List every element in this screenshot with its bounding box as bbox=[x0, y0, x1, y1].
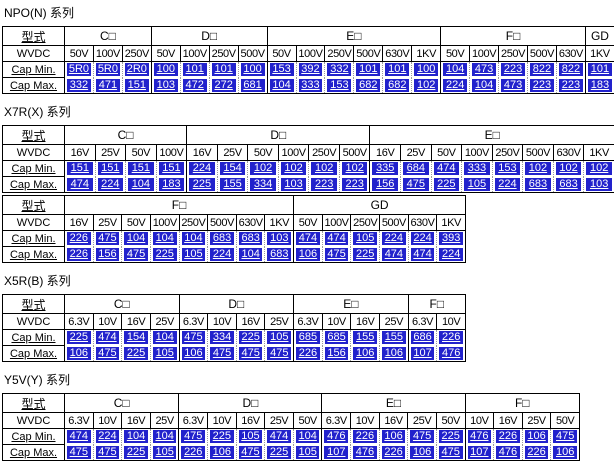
cap-max-cell: 104 bbox=[236, 247, 265, 263]
cap-value-link[interactable]: 683 bbox=[556, 178, 582, 191]
cap-min-cell: 5R0 bbox=[93, 62, 122, 78]
cap-value-link[interactable]: 151 bbox=[159, 162, 185, 175]
cap-min-cell: 333 bbox=[462, 161, 493, 177]
cap-value-link[interactable]: 105 bbox=[239, 430, 263, 443]
cap-min-cell: 106 bbox=[379, 429, 408, 445]
cap-value-link[interactable]: 474 bbox=[411, 248, 435, 261]
cap-max-cell: 153 bbox=[325, 78, 354, 94]
cap-value-link[interactable]: 5R0 bbox=[67, 63, 91, 76]
cap-value-link[interactable]: 104 bbox=[153, 232, 177, 245]
cap-value-link[interactable]: 106 bbox=[182, 347, 206, 360]
cap-min-label[interactable]: Cap Min. bbox=[3, 330, 65, 346]
cap-value-link[interactable]: 154 bbox=[220, 162, 246, 175]
cap-min-cell: 683 bbox=[236, 231, 265, 247]
cap-min-cell: 104 bbox=[122, 231, 151, 247]
cap-max-cell: 475 bbox=[236, 346, 265, 362]
cap-value-link[interactable]: 475 bbox=[124, 248, 148, 261]
cap-max-cell: 225 bbox=[122, 346, 151, 362]
cap-value-link[interactable]: 683 bbox=[239, 232, 263, 245]
cap-min-cell: 684 bbox=[401, 161, 432, 177]
cap-value-link[interactable]: 393 bbox=[439, 232, 463, 245]
cap-max-cell: 682 bbox=[354, 78, 383, 94]
cap-min-cell: 226 bbox=[351, 429, 380, 445]
cap-value-link[interactable]: 225 bbox=[267, 446, 291, 459]
cap-value-link[interactable]: 683 bbox=[525, 178, 551, 191]
cap-value-link[interactable]: 156 bbox=[96, 248, 120, 261]
cap-value-link[interactable]: 106 bbox=[410, 446, 434, 459]
cap-value-link[interactable]: 226 bbox=[525, 446, 549, 459]
cap-value-link[interactable]: 156 bbox=[325, 347, 349, 360]
cap-value-link[interactable]: 223 bbox=[501, 63, 525, 76]
cap-value-link[interactable]: 223 bbox=[559, 79, 583, 92]
cap-value-link[interactable]: 334 bbox=[210, 331, 234, 344]
cap-value-link[interactable]: 102 bbox=[342, 162, 368, 175]
cap-max-cell: 102 bbox=[412, 78, 441, 94]
cap-value-link[interactable]: 226 bbox=[439, 331, 463, 344]
cap-value-link[interactable]: 332 bbox=[327, 63, 351, 76]
cap-value-link[interactable]: 224 bbox=[495, 178, 521, 191]
cap-max-cell: 105 bbox=[462, 177, 493, 193]
cap-value-link[interactable]: 224 bbox=[189, 162, 215, 175]
cap-max-label[interactable]: Cap Max. bbox=[3, 177, 65, 193]
cap-value-link[interactable]: 476 bbox=[496, 446, 520, 459]
cap-value-link[interactable]: 475 bbox=[182, 331, 206, 344]
cap-value-link[interactable]: 100 bbox=[241, 63, 265, 76]
cap-value-link[interactable]: 474 bbox=[67, 430, 91, 443]
cap-value-link[interactable]: 333 bbox=[464, 162, 490, 175]
cap-min-label[interactable]: Cap Min. bbox=[3, 429, 65, 445]
cap-max-cell: 224 bbox=[95, 177, 126, 193]
cap-value-link[interactable]: 476 bbox=[439, 347, 463, 360]
cap-value-link[interactable]: 475 bbox=[181, 430, 205, 443]
voltage-header: 25V bbox=[380, 314, 409, 330]
cap-min-cell: 475 bbox=[179, 429, 208, 445]
cap-value-link[interactable]: 682 bbox=[385, 79, 409, 92]
cap-value-link[interactable]: 474 bbox=[434, 162, 460, 175]
cap-value-link[interactable]: 104 bbox=[296, 430, 320, 443]
cap-value-link[interactable]: 103 bbox=[154, 79, 178, 92]
voltage-header: 630V bbox=[553, 145, 584, 161]
voltage-header: 10V bbox=[322, 314, 351, 330]
cap-value-link[interactable]: 104 bbox=[270, 79, 294, 92]
cap-value-link[interactable]: 681 bbox=[241, 79, 265, 92]
cap-min-cell: 102 bbox=[523, 161, 554, 177]
cap-value-link[interactable]: 224 bbox=[411, 232, 435, 245]
cap-value-link[interactable]: 106 bbox=[67, 347, 91, 360]
cap-value-link[interactable]: 154 bbox=[124, 331, 148, 344]
cap-value-link[interactable]: 475 bbox=[239, 347, 263, 360]
cap-value-link[interactable]: 153 bbox=[327, 79, 351, 92]
cap-value-link[interactable]: 474 bbox=[325, 232, 349, 245]
cap-value-link[interactable]: 226 bbox=[296, 347, 320, 360]
cap-value-link[interactable]: 104 bbox=[443, 63, 467, 76]
cap-value-link[interactable]: 183 bbox=[159, 178, 185, 191]
cap-value-link[interactable]: 103 bbox=[586, 178, 612, 191]
cap-value-link[interactable]: 101 bbox=[385, 63, 409, 76]
cap-max-cell: 475 bbox=[208, 346, 237, 362]
cap-max-label[interactable]: Cap Max. bbox=[3, 78, 65, 94]
cap-min-cell: 224 bbox=[93, 429, 122, 445]
cap-value-link[interactable]: 685 bbox=[296, 331, 320, 344]
cap-max-cell: 155 bbox=[217, 177, 248, 193]
cap-value-link[interactable]: 223 bbox=[342, 178, 368, 191]
cap-value-link[interactable]: 100 bbox=[414, 63, 438, 76]
cap-value-link[interactable]: 682 bbox=[356, 79, 380, 92]
cap-value-link[interactable]: 472 bbox=[183, 79, 207, 92]
cap-value-link[interactable]: 473 bbox=[472, 63, 496, 76]
cap-min-cell: 225 bbox=[436, 429, 465, 445]
cap-value-link[interactable]: 225 bbox=[67, 331, 91, 344]
cap-value-link[interactable]: 224 bbox=[439, 248, 463, 261]
cap-max-cell: 475 bbox=[436, 445, 465, 461]
cap-min-cell: 100 bbox=[238, 62, 267, 78]
cap-value-link[interactable]: 473 bbox=[501, 79, 525, 92]
cap-value-link[interactable]: 476 bbox=[468, 430, 492, 443]
section-title: NPO(N) 系列 bbox=[4, 6, 614, 20]
cap-value-link[interactable]: 224 bbox=[98, 178, 124, 191]
cap-value-link[interactable]: 225 bbox=[353, 248, 377, 261]
cap-value-link[interactable]: 106 bbox=[525, 430, 549, 443]
cap-max-cell: 475 bbox=[65, 445, 94, 461]
cap-max-cell: 105 bbox=[293, 445, 322, 461]
cap-value-link[interactable]: 471 bbox=[96, 79, 120, 92]
cap-value-link[interactable]: 223 bbox=[311, 178, 337, 191]
cap-min-cell: 474 bbox=[294, 231, 323, 247]
cap-value-link[interactable]: 155 bbox=[353, 331, 377, 344]
cap-max-cell: 474 bbox=[65, 177, 96, 193]
type-label[interactable]: 型式 bbox=[3, 126, 65, 145]
cap-value-link[interactable]: 105 bbox=[267, 331, 291, 344]
cap-value-link[interactable]: 822 bbox=[559, 63, 583, 76]
cap-value-link[interactable]: 104 bbox=[128, 178, 154, 191]
type-label[interactable]: 型式 bbox=[3, 27, 65, 46]
cap-value-link[interactable]: 151 bbox=[128, 162, 154, 175]
cap-value-link[interactable]: 224 bbox=[210, 248, 234, 261]
cap-max-cell: 333 bbox=[296, 78, 325, 94]
cap-value-link[interactable]: 475 bbox=[96, 232, 120, 245]
cap-max-cell: 475 bbox=[93, 346, 122, 362]
cap-max-cell: 476 bbox=[437, 346, 466, 362]
cap-min-cell: 104 bbox=[150, 231, 179, 247]
cap-value-link[interactable]: 105 bbox=[153, 347, 177, 360]
cap-value-link[interactable]: 101 bbox=[588, 63, 612, 76]
cap-value-link[interactable]: 224 bbox=[96, 430, 120, 443]
cap-value-link[interactable]: 475 bbox=[239, 446, 263, 459]
cap-value-link[interactable]: 335 bbox=[372, 162, 398, 175]
cap-value-link[interactable]: 226 bbox=[496, 430, 520, 443]
cap-value-link[interactable]: 475 bbox=[96, 446, 120, 459]
cap-min-cell: 473 bbox=[470, 62, 499, 78]
cap-max-cell: 472 bbox=[180, 78, 209, 94]
cap-max-cell: 183 bbox=[585, 78, 614, 94]
cap-value-link[interactable]: 107 bbox=[468, 446, 492, 459]
cap-value-link[interactable]: 475 bbox=[325, 248, 349, 261]
cap-value-link[interactable]: 475 bbox=[210, 347, 234, 360]
cap-min-cell: 101 bbox=[383, 62, 412, 78]
cap-value-link[interactable]: 107 bbox=[324, 446, 348, 459]
cap-min-cell: 151 bbox=[126, 161, 157, 177]
cap-value-link[interactable]: 225 bbox=[210, 430, 234, 443]
cap-value-link[interactable]: 102 bbox=[525, 162, 551, 175]
cap-min-cell: 476 bbox=[322, 429, 351, 445]
cap-value-link[interactable]: 183 bbox=[588, 79, 612, 92]
cap-min-cell: 226 bbox=[437, 330, 466, 346]
cap-value-link[interactable]: 226 bbox=[67, 248, 91, 261]
cap-min-cell: 155 bbox=[380, 330, 409, 346]
cap-max-cell: 103 bbox=[151, 78, 180, 94]
voltage-header: 16V bbox=[187, 145, 218, 161]
cap-min-cell: 102 bbox=[248, 161, 279, 177]
cap-min-cell: 474 bbox=[93, 330, 122, 346]
cap-value-link[interactable]: 685 bbox=[325, 331, 349, 344]
cap-value-link[interactable]: 225 bbox=[153, 248, 177, 261]
section-title: Y5V(Y) 系列 bbox=[4, 373, 614, 387]
voltage-header: 16V bbox=[122, 314, 151, 330]
cap-value-link[interactable]: 684 bbox=[403, 162, 429, 175]
cap-value-link[interactable]: 105 bbox=[353, 232, 377, 245]
cap-value-link[interactable]: 153 bbox=[495, 162, 521, 175]
cap-value-link[interactable]: 476 bbox=[324, 430, 348, 443]
cap-max-label[interactable]: Cap Max. bbox=[3, 445, 65, 461]
cap-value-link[interactable]: 106 bbox=[382, 347, 406, 360]
cap-value-link[interactable]: 475 bbox=[267, 347, 291, 360]
cap-min-label[interactable]: Cap Min. bbox=[3, 62, 65, 78]
cap-min-cell: 475 bbox=[93, 231, 122, 247]
voltage-header: 500V bbox=[238, 46, 267, 62]
voltage-header: 500V bbox=[208, 215, 237, 231]
cap-max-cell: 106 bbox=[408, 445, 437, 461]
cap-value-link[interactable]: 106 bbox=[553, 446, 577, 459]
cap-max-cell: 156 bbox=[322, 346, 351, 362]
cap-value-link[interactable]: 156 bbox=[372, 178, 398, 191]
cap-min-cell: 224 bbox=[408, 231, 437, 247]
cap-value-link[interactable]: 225 bbox=[124, 347, 148, 360]
cap-max-cell: 226 bbox=[294, 346, 323, 362]
cap-value-link[interactable]: 224 bbox=[382, 232, 406, 245]
cap-value-link[interactable]: 107 bbox=[411, 347, 435, 360]
cap-value-link[interactable]: 101 bbox=[356, 63, 380, 76]
group-header: E□ bbox=[370, 126, 614, 145]
cap-value-link[interactable]: 101 bbox=[212, 63, 236, 76]
section-title: X5R(B) 系列 bbox=[4, 274, 614, 288]
type-label[interactable]: 型式 bbox=[3, 394, 65, 413]
cap-max-cell: 226 bbox=[379, 445, 408, 461]
voltage-header: 630V bbox=[408, 215, 437, 231]
cap-max-cell: 683 bbox=[523, 177, 554, 193]
voltage-header: 10V bbox=[93, 314, 122, 330]
cap-value-link[interactable]: 474 bbox=[67, 178, 93, 191]
type-label[interactable]: 型式 bbox=[3, 196, 65, 215]
cap-value-link[interactable]: 104 bbox=[153, 430, 177, 443]
cap-value-link[interactable]: 102 bbox=[414, 79, 438, 92]
cap-max-cell: 183 bbox=[156, 177, 187, 193]
cap-value-link[interactable]: 153 bbox=[270, 63, 294, 76]
cap-value-link[interactable]: 226 bbox=[181, 446, 205, 459]
cap-value-link[interactable]: 155 bbox=[220, 178, 246, 191]
cap-value-link[interactable]: 102 bbox=[311, 162, 337, 175]
cap-value-link[interactable]: 475 bbox=[403, 178, 429, 191]
cap-min-cell: 102 bbox=[339, 161, 370, 177]
cap-max-cell: 106 bbox=[65, 346, 94, 362]
cap-value-link[interactable]: 151 bbox=[67, 162, 93, 175]
cap-min-cell: 686 bbox=[408, 330, 437, 346]
voltage-header: 50V bbox=[248, 145, 279, 161]
voltage-header: 1KV bbox=[412, 46, 441, 62]
cap-value-link[interactable]: 475 bbox=[96, 347, 120, 360]
cap-min-cell: 106 bbox=[522, 429, 551, 445]
cap-min-cell: 101 bbox=[209, 62, 238, 78]
cap-value-link[interactable]: 105 bbox=[153, 446, 177, 459]
cap-value-link[interactable]: 475 bbox=[67, 446, 91, 459]
voltage-header: 50V bbox=[441, 46, 470, 62]
cap-value-link[interactable]: 102 bbox=[556, 162, 582, 175]
voltage-header: 25V bbox=[93, 215, 122, 231]
cap-value-link[interactable]: 102 bbox=[250, 162, 276, 175]
cap-value-link[interactable]: 226 bbox=[67, 232, 91, 245]
cap-value-link[interactable]: 272 bbox=[212, 79, 236, 92]
cap-value-link[interactable]: 105 bbox=[182, 248, 206, 261]
cap-value-link[interactable]: 103 bbox=[281, 178, 307, 191]
cap-value-link[interactable]: 683 bbox=[267, 248, 291, 261]
cap-value-link[interactable]: 103 bbox=[267, 232, 291, 245]
voltage-header: 250V bbox=[351, 215, 380, 231]
cap-min-cell: 822 bbox=[556, 62, 585, 78]
cap-max-label[interactable]: Cap Max. bbox=[3, 247, 65, 263]
cap-value-link[interactable]: 226 bbox=[353, 430, 377, 443]
cap-value-link[interactable]: 686 bbox=[411, 331, 435, 344]
cap-min-cell: 225 bbox=[236, 330, 265, 346]
cap-min-cell: 223 bbox=[499, 62, 528, 78]
voltage-header: 16V bbox=[351, 314, 380, 330]
cap-min-label[interactable]: Cap Min. bbox=[3, 231, 65, 247]
cap-value-link[interactable]: 2R0 bbox=[125, 63, 149, 76]
cap-max-cell: 107 bbox=[322, 445, 351, 461]
voltage-header: 500V bbox=[528, 46, 557, 62]
cap-max-cell: 225 bbox=[122, 445, 151, 461]
cap-min-cell: 822 bbox=[528, 62, 557, 78]
cap-value-link[interactable]: 476 bbox=[353, 446, 377, 459]
cap-value-link[interactable]: 106 bbox=[296, 248, 320, 261]
cap-value-link[interactable]: 474 bbox=[96, 331, 120, 344]
cap-value-link[interactable]: 225 bbox=[124, 446, 148, 459]
cap-value-link[interactable]: 105 bbox=[464, 178, 490, 191]
type-label[interactable]: 型式 bbox=[3, 295, 65, 314]
voltage-header: 500V bbox=[354, 46, 383, 62]
cap-value-link[interactable]: 104 bbox=[239, 248, 263, 261]
cap-value-link[interactable]: 474 bbox=[382, 248, 406, 261]
spec-table: 型式C□D□E□F□WVDC6.3V10V16V25V6.3V10V16V25V… bbox=[2, 393, 580, 461]
voltage-header: 100V bbox=[470, 46, 499, 62]
cap-min-cell: 226 bbox=[65, 231, 94, 247]
cap-value-link[interactable]: 106 bbox=[382, 430, 406, 443]
group-header: GD bbox=[585, 27, 614, 46]
cap-value-link[interactable]: 334 bbox=[250, 178, 276, 191]
cap-max-cell: 106 bbox=[179, 346, 208, 362]
wvdc-label: WVDC bbox=[3, 215, 65, 231]
cap-value-link[interactable]: 102 bbox=[281, 162, 307, 175]
cap-value-link[interactable]: 5R0 bbox=[96, 63, 120, 76]
cap-value-link[interactable]: 474 bbox=[296, 232, 320, 245]
cap-min-cell: 155 bbox=[351, 330, 380, 346]
cap-value-link[interactable]: 392 bbox=[299, 63, 323, 76]
cap-max-cell: 151 bbox=[122, 78, 151, 94]
cap-value-link[interactable]: 102 bbox=[586, 162, 612, 175]
cap-value-link[interactable]: 104 bbox=[124, 232, 148, 245]
cap-value-link[interactable]: 223 bbox=[530, 79, 554, 92]
cap-value-link[interactable]: 333 bbox=[299, 79, 323, 92]
cap-value-link[interactable]: 100 bbox=[154, 63, 178, 76]
cap-min-cell: 154 bbox=[217, 161, 248, 177]
cap-max-cell: 105 bbox=[150, 445, 179, 461]
group-header: F□ bbox=[408, 295, 465, 314]
voltage-header: 25V bbox=[401, 145, 432, 161]
cap-value-link[interactable]: 104 bbox=[472, 79, 496, 92]
cap-max-cell: 106 bbox=[208, 445, 237, 461]
cap-value-link[interactable]: 474 bbox=[267, 430, 291, 443]
voltage-header: 100V bbox=[93, 46, 122, 62]
cap-max-cell: 475 bbox=[122, 247, 151, 263]
cap-max-cell: 224 bbox=[492, 177, 523, 193]
cap-value-link[interactable]: 475 bbox=[553, 430, 577, 443]
cap-value-link[interactable]: 225 bbox=[434, 178, 460, 191]
cap-value-link[interactable]: 332 bbox=[67, 79, 91, 92]
cap-value-link[interactable]: 225 bbox=[439, 430, 463, 443]
cap-value-link[interactable]: 475 bbox=[410, 430, 434, 443]
cap-value-link[interactable]: 155 bbox=[382, 331, 406, 344]
cap-value-link[interactable]: 151 bbox=[125, 79, 149, 92]
cap-value-link[interactable]: 683 bbox=[210, 232, 234, 245]
series-section: X5R(B) 系列型式C□D□E□F□WVDC6.3V10V16V25V6.3V… bbox=[1, 274, 614, 362]
cap-max-cell: 156 bbox=[93, 247, 122, 263]
cap-value-link[interactable]: 475 bbox=[439, 446, 463, 459]
voltage-header: 500V bbox=[523, 145, 554, 161]
voltage-header: 6.3V bbox=[65, 314, 94, 330]
cap-value-link[interactable]: 225 bbox=[189, 178, 215, 191]
cap-min-cell: 685 bbox=[322, 330, 351, 346]
cap-value-link[interactable]: 822 bbox=[530, 63, 554, 76]
cap-min-cell: 104 bbox=[441, 62, 470, 78]
wvdc-label: WVDC bbox=[3, 46, 65, 62]
cap-value-link[interactable]: 104 bbox=[182, 232, 206, 245]
cap-max-cell: 103 bbox=[278, 177, 309, 193]
cap-max-cell: 474 bbox=[408, 247, 437, 263]
cap-max-cell: 223 bbox=[528, 78, 557, 94]
cap-min-cell: 224 bbox=[187, 161, 218, 177]
cap-value-link[interactable]: 226 bbox=[382, 446, 406, 459]
voltage-header: 630V bbox=[556, 46, 585, 62]
cap-value-link[interactable]: 101 bbox=[183, 63, 207, 76]
cap-value-link[interactable]: 106 bbox=[353, 347, 377, 360]
voltage-header: 250V bbox=[209, 46, 238, 62]
cap-max-cell: 104 bbox=[470, 78, 499, 94]
cap-max-cell: 225 bbox=[431, 177, 462, 193]
cap-max-cell: 106 bbox=[551, 445, 580, 461]
cap-value-link[interactable]: 225 bbox=[239, 331, 263, 344]
cap-value-link[interactable]: 104 bbox=[153, 331, 177, 344]
cap-max-label[interactable]: Cap Max. bbox=[3, 346, 65, 362]
cap-value-link[interactable]: 104 bbox=[124, 430, 148, 443]
cap-min-label[interactable]: Cap Min. bbox=[3, 161, 65, 177]
cap-value-link[interactable]: 151 bbox=[98, 162, 124, 175]
cap-value-link[interactable]: 224 bbox=[443, 79, 467, 92]
series-section: X7R(X) 系列型式C□D□E□WVDC16V25V50V100V16V25V… bbox=[1, 105, 614, 263]
cap-value-link[interactable]: 106 bbox=[210, 446, 234, 459]
cap-value-link[interactable]: 105 bbox=[296, 446, 320, 459]
cap-max-cell: 107 bbox=[465, 445, 494, 461]
cap-min-cell: 476 bbox=[465, 429, 494, 445]
voltage-header: 6.3V bbox=[179, 314, 208, 330]
cap-min-cell: 332 bbox=[325, 62, 354, 78]
